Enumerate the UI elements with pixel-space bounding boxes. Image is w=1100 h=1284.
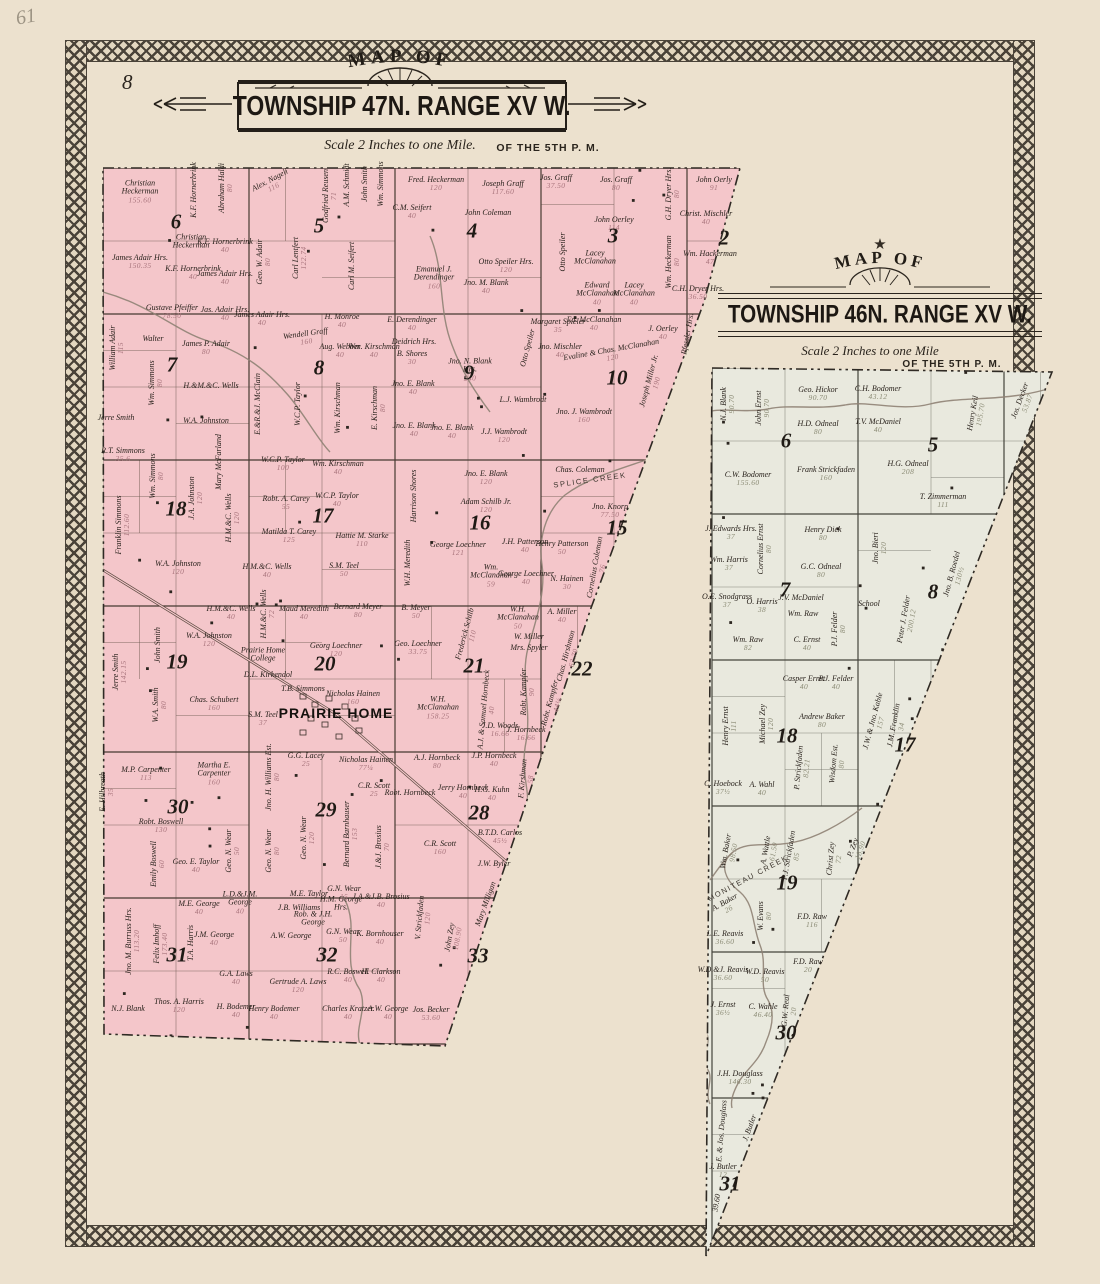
map-of-arc-46: MAP OF: [770, 249, 990, 293]
township-47-title-text: TOWNSHIP 47N. RANGE XV W.: [233, 90, 571, 122]
title-township-47: MAP OF TOWNSHIP 47N. RANGE XV W. Scale 2…: [150, 50, 650, 160]
meridian-note-46: OF THE 5TH P. M.: [902, 359, 1001, 370]
township-46-title-text: TOWNSHIP 46N. RANGE XV W.: [728, 300, 1032, 330]
map46-body: [700, 368, 1100, 1256]
township-46-banner: TOWNSHIP 46N. RANGE XV W.: [710, 301, 1050, 328]
title-township-46: ★ MAP OF TOWNSHIP 46N. RANGE XV W. Scale…: [710, 233, 1050, 378]
scale-note-47: Scale 2 Inches to one Mile.: [324, 138, 476, 154]
township-47-banner: TOWNSHIP 47N. RANGE XV W.: [237, 82, 567, 130]
banner-flourish-right: [566, 86, 650, 122]
meridian-note-47: OF THE 5TH P. M.: [496, 142, 599, 154]
banner-rule-bottom: [718, 331, 1042, 337]
banner-rule-top: [718, 293, 1042, 299]
scale-note-46: Scale 2 Inches to one Mile: [801, 343, 939, 359]
maps-canvas: [0, 0, 1100, 1284]
banner-flourish-left: [150, 86, 234, 122]
